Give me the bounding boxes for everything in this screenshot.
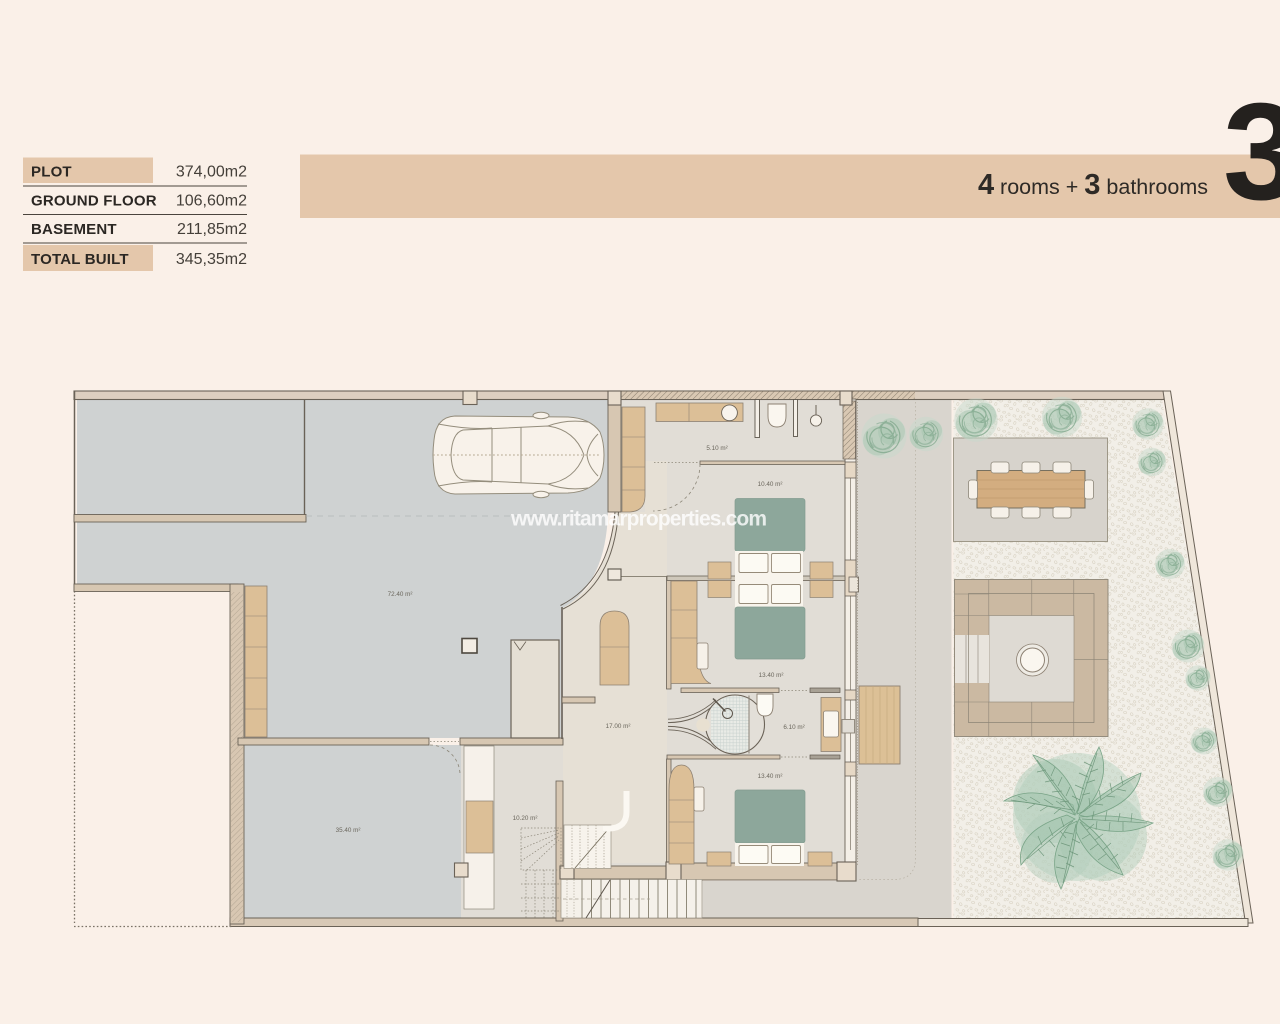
svg-text:BASEMENT: BASEMENT	[31, 221, 117, 238]
svg-text:374,00m2: 374,00m2	[176, 164, 247, 181]
svg-text:PLOT: PLOT	[31, 164, 72, 181]
svg-text:6.10 m²: 6.10 m²	[783, 724, 804, 731]
svg-text:3: 3	[1223, 75, 1280, 229]
svg-text:35.40 m²: 35.40 m²	[336, 827, 361, 834]
svg-text:345,35m2: 345,35m2	[176, 251, 247, 268]
svg-text:106,60m2: 106,60m2	[176, 193, 247, 210]
svg-text:72.40 m²: 72.40 m²	[388, 591, 413, 598]
svg-text:www.ritamarproperties.com: www.ritamarproperties.com	[510, 508, 767, 531]
svg-text:TOTAL BUILT: TOTAL BUILT	[31, 251, 129, 268]
svg-text:5.10 m²: 5.10 m²	[706, 445, 727, 452]
svg-text:211,85m2: 211,85m2	[177, 221, 247, 238]
svg-text:10.40 m²: 10.40 m²	[758, 481, 783, 488]
svg-text:10.20 m²: 10.20 m²	[513, 815, 538, 822]
svg-text:GROUND FLOOR: GROUND FLOOR	[31, 193, 157, 210]
svg-text:13.40 m²: 13.40 m²	[759, 672, 784, 679]
svg-text:13.40 m²: 13.40 m²	[758, 773, 783, 780]
svg-text:17.00 m²: 17.00 m²	[606, 723, 631, 730]
